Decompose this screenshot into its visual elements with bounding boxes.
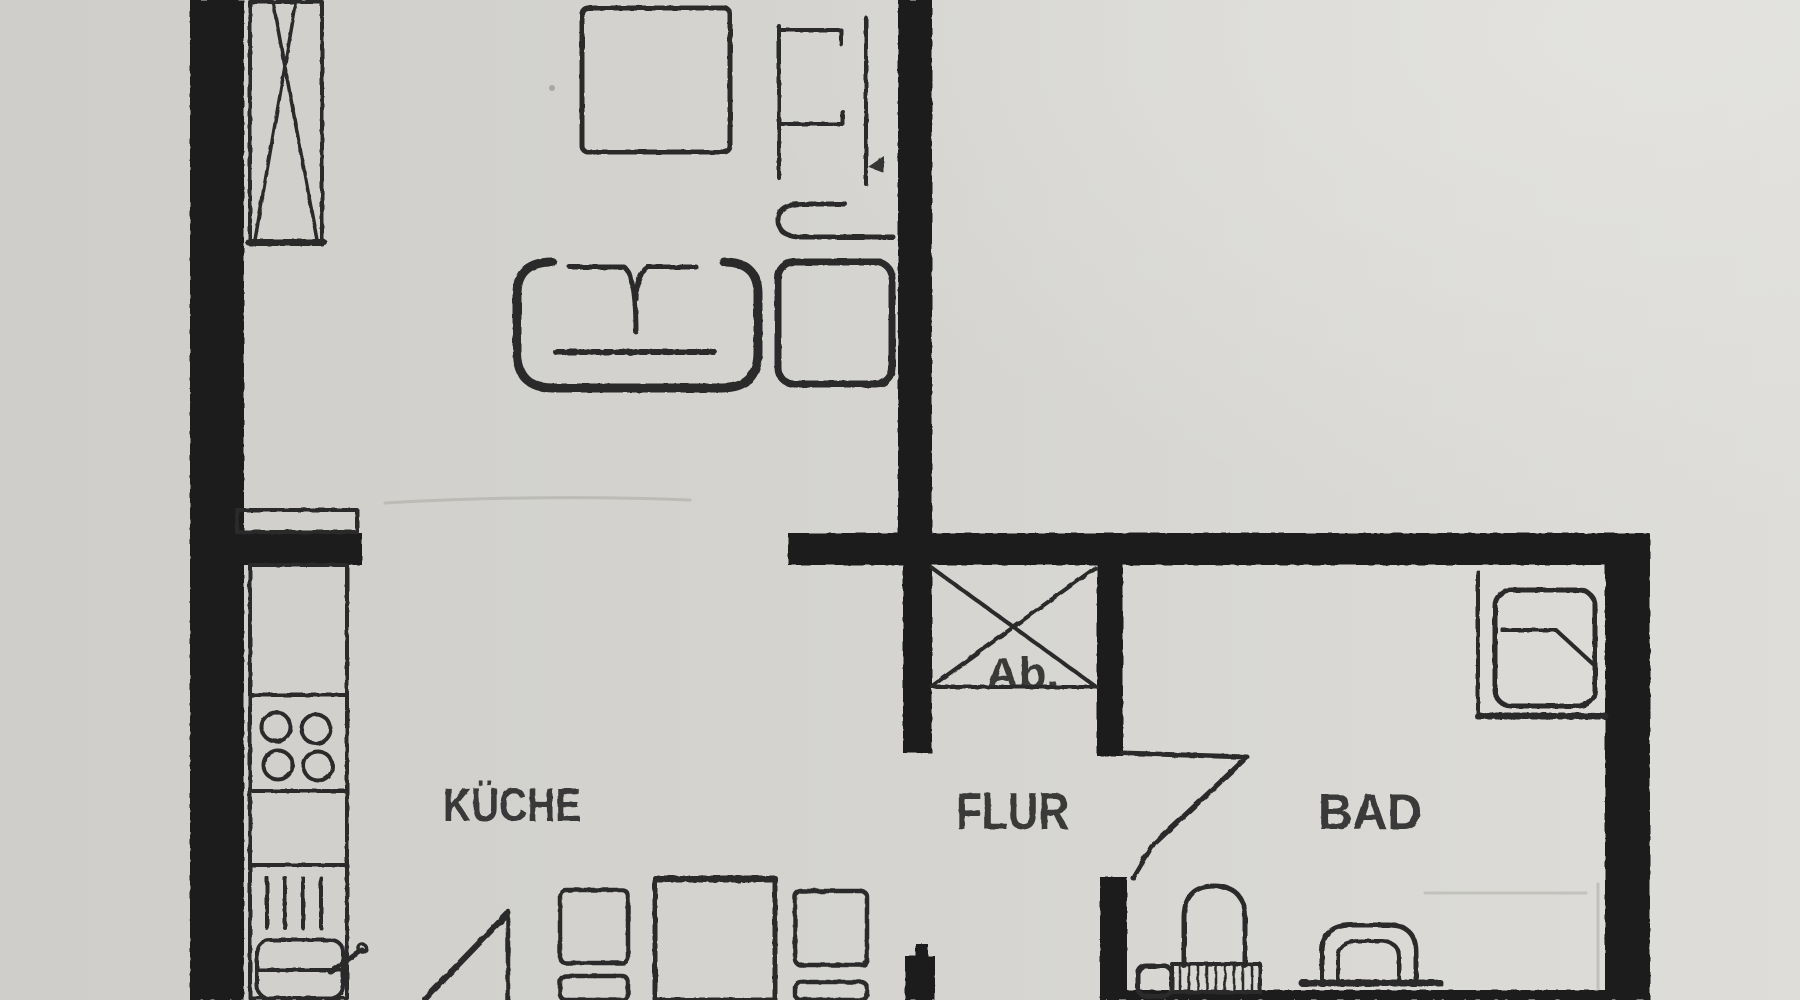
- wall-bath-right-exterior: [1605, 533, 1650, 1000]
- floor-plan-svg: KÜCHE FLUR BAD Ab.: [0, 0, 1800, 1000]
- wall-left-exterior: [190, 0, 244, 1000]
- wall-livingroom-right: [898, 0, 932, 565]
- wall-storage-right-stub: [1097, 565, 1123, 756]
- wall-stub-notch: [916, 944, 928, 960]
- room-label-kueche: KÜCHE: [443, 778, 581, 831]
- room-label-bad: BAD: [1318, 784, 1422, 840]
- wall-storage-left-stub: [903, 565, 932, 753]
- wall-kitchen-flur-bottom-stub: [905, 956, 935, 1000]
- room-label-flur: FLUR: [956, 783, 1069, 841]
- room-label-ab: Ab.: [986, 649, 1059, 698]
- wall-flur-bad-lower: [1100, 877, 1127, 1000]
- wall-kitchen-top: [230, 533, 362, 565]
- wall-hall-bath-top: [788, 533, 1650, 565]
- scanned-floor-plan-page: KÜCHE FLUR BAD Ab.: [0, 0, 1800, 1000]
